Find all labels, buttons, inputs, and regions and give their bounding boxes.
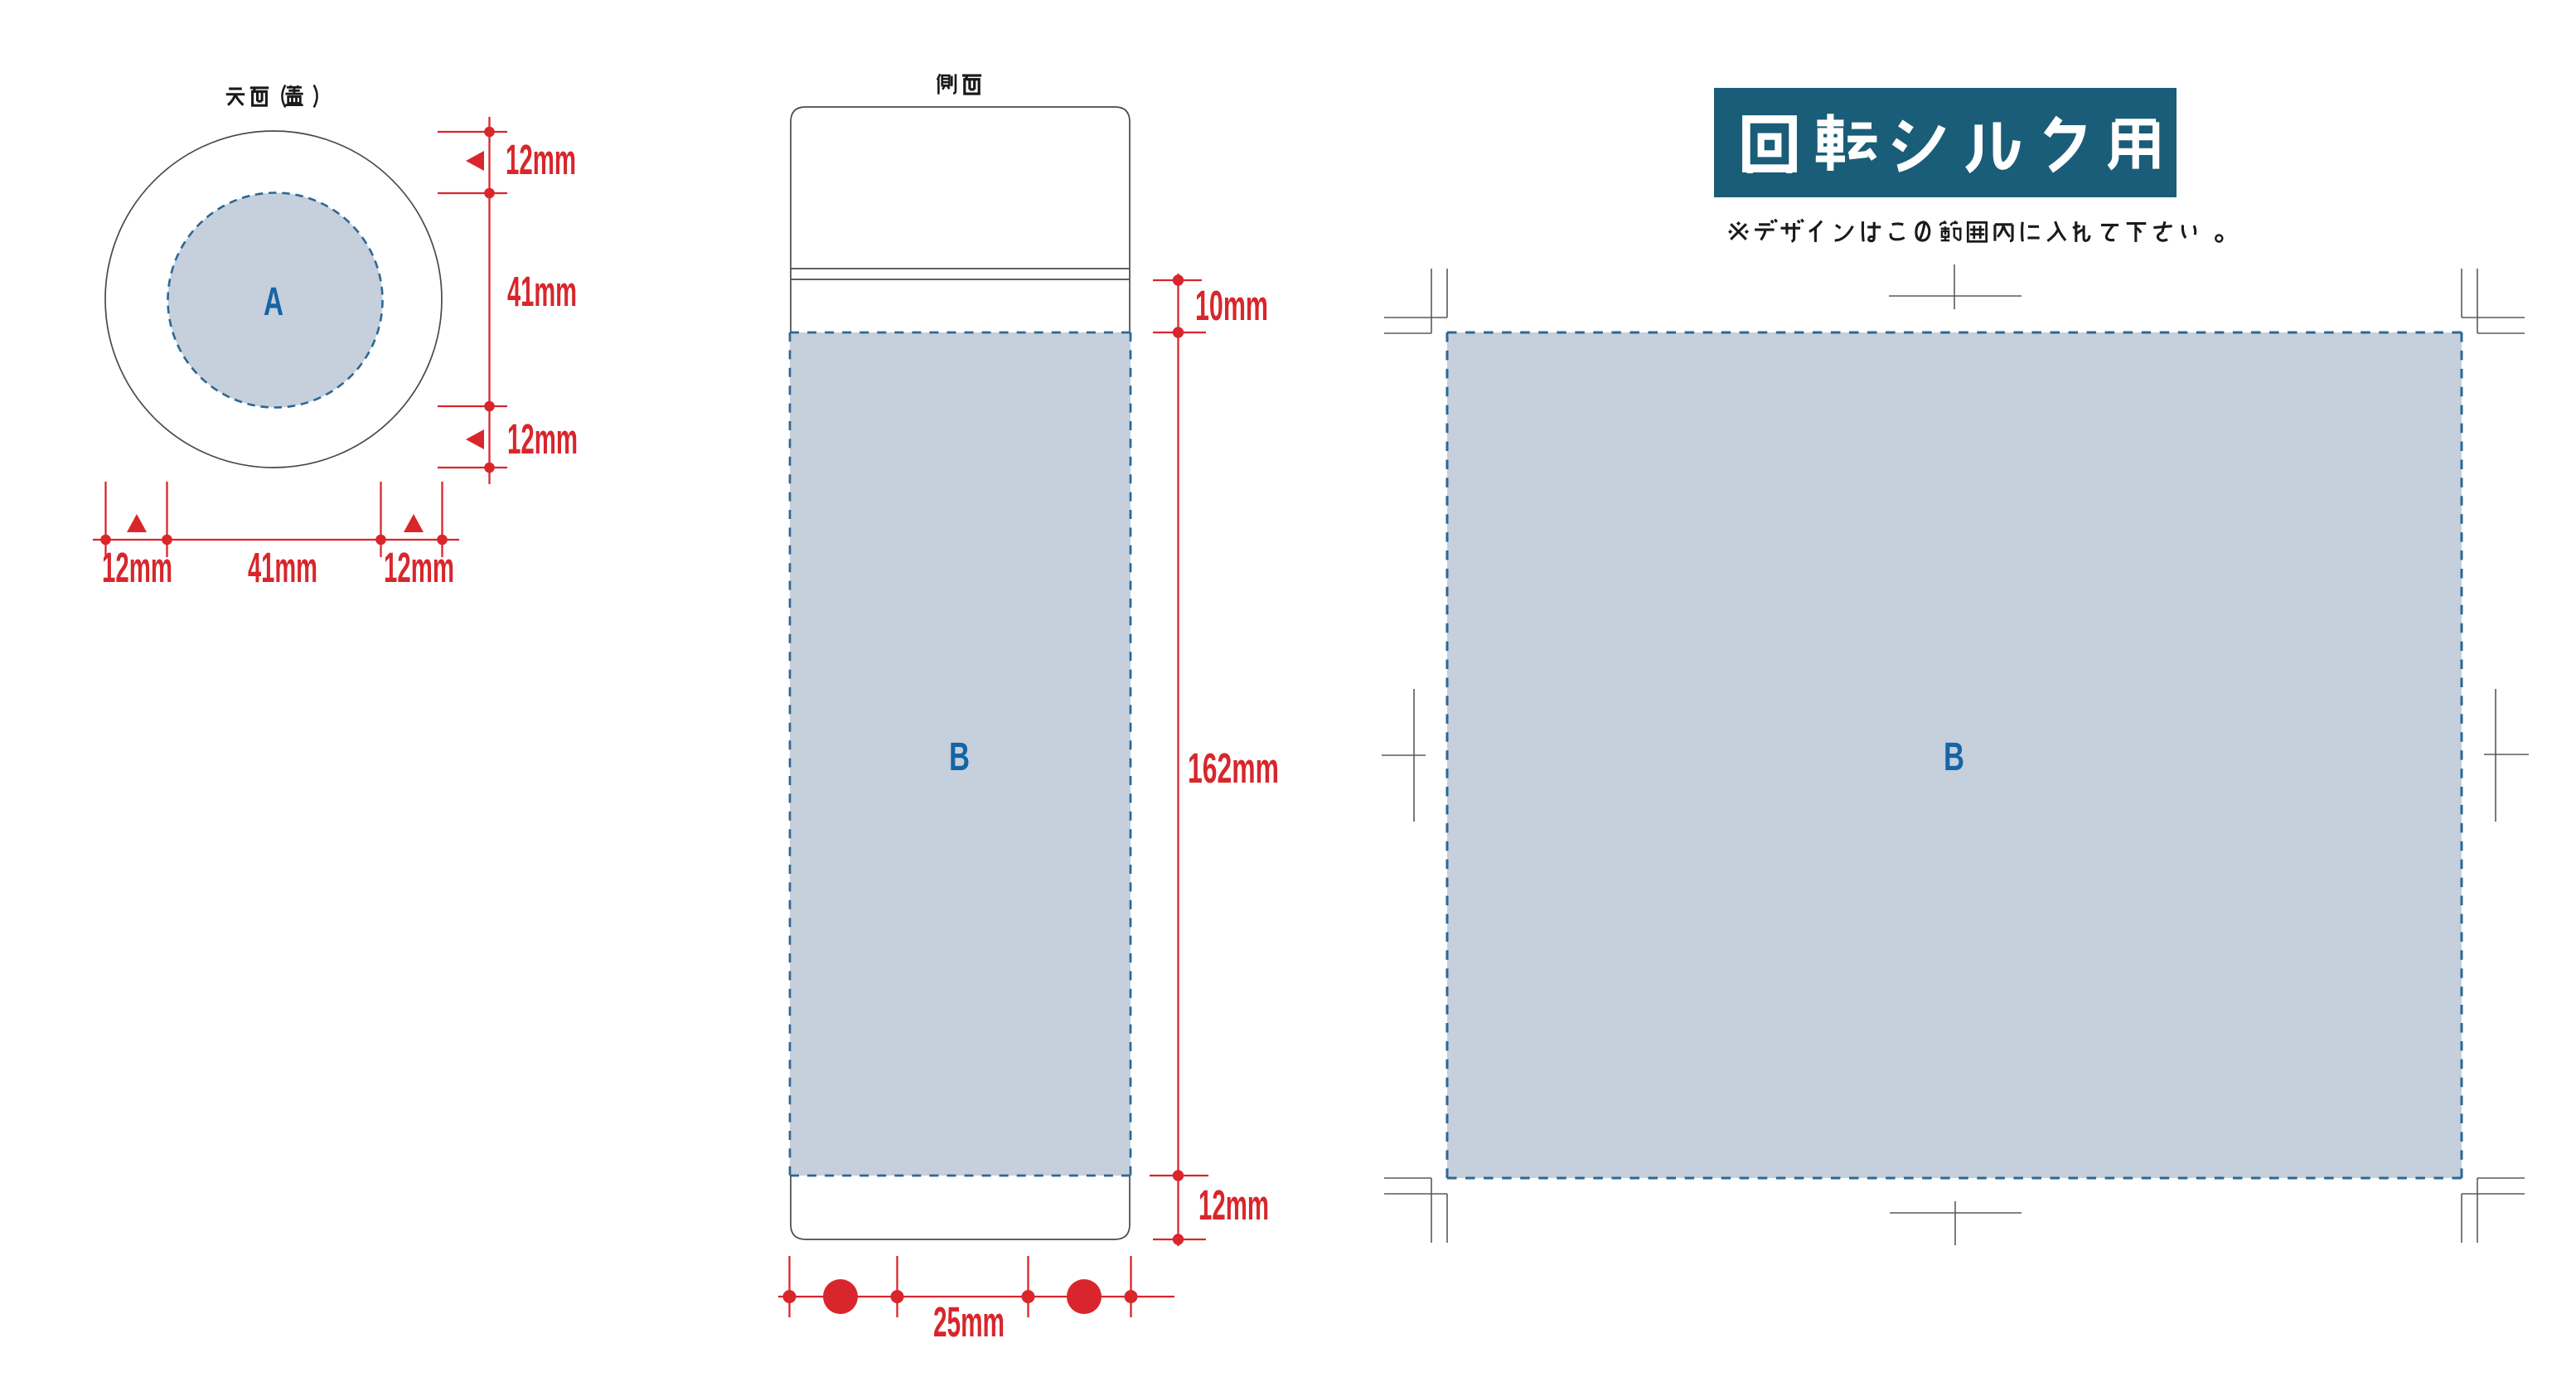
svg-text:12mm: 12mm [1198,1181,1269,1229]
svg-text:12mm: 12mm [384,544,454,591]
svg-text:41mm: 41mm [248,544,317,591]
svg-text:12mm: 12mm [507,415,578,463]
svg-text:B: B [949,735,970,779]
svg-text:41mm: 41mm [507,268,577,315]
svg-text:A: A [264,280,283,324]
svg-text:B: B [1944,735,1964,779]
svg-text:25mm: 25mm [933,1298,1005,1346]
svg-text:12mm: 12mm [506,136,576,183]
svg-text:12mm: 12mm [102,544,172,591]
svg-text:162mm: 162mm [1188,744,1279,792]
svg-text:10mm: 10mm [1195,282,1268,329]
